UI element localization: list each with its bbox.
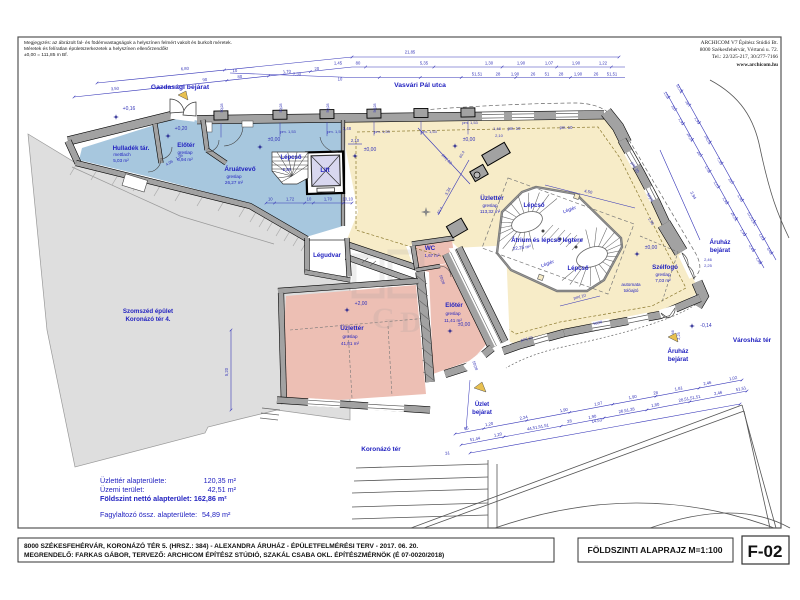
svg-text:10,10: 10,10 [342, 197, 353, 202]
svg-text:automata: automata [621, 282, 641, 287]
svg-text:1,22: 1,22 [599, 61, 608, 66]
svg-text:pm. 10: pm. 10 [560, 125, 573, 130]
svg-text:ARCHICOM V7 Építész Stúdió Bt.: ARCHICOM V7 Építész Stúdió Bt. [701, 38, 778, 46]
svg-text:±0,00 = 111,85 m Bf.: ±0,00 = 111,85 m Bf. [24, 52, 68, 58]
svg-text:50|28: 50|28 [373, 104, 377, 113]
svg-text:2,25: 2,25 [677, 332, 681, 339]
svg-text:±0,00: ±0,00 [268, 137, 281, 143]
svg-text:1,30: 1,30 [485, 61, 494, 66]
svg-text:1,90: 1,90 [517, 61, 526, 66]
svg-text:WC: WC [425, 245, 436, 252]
svg-text:greslap: greslap [655, 272, 671, 277]
svg-text:FÖLDSZINTI ALAPRAJZ M=1:100: FÖLDSZINTI ALAPRAJZ M=1:100 [587, 545, 722, 555]
svg-text:10: 10 [268, 197, 273, 202]
svg-text:10: 10 [338, 77, 343, 82]
svg-text:50|28: 50|28 [326, 104, 330, 113]
svg-text:+0,20: +0,20 [175, 126, 188, 132]
svg-text:Szélfogó: Szélfogó [652, 264, 678, 271]
svg-text:greslap: greslap [177, 150, 193, 155]
svg-text:Lépcső: Lépcső [567, 266, 588, 272]
svg-text:www.archicom.hu: www.archicom.hu [736, 62, 778, 68]
svg-text:7,03 m²: 7,03 m² [655, 278, 671, 283]
svg-text:greslap: greslap [445, 311, 461, 316]
svg-text:1,90: 1,90 [511, 72, 520, 77]
svg-text:Vasvári Pál utca: Vasvári Pál utca [394, 82, 446, 89]
svg-text:tolóajtó: tolóajtó [624, 288, 639, 293]
svg-text:1,72: 1,72 [286, 197, 295, 202]
svg-text:greslap: greslap [482, 203, 498, 208]
svg-text:pm. 1,53: pm. 1,53 [421, 129, 437, 134]
svg-text:Előtér: Előtér [177, 142, 195, 149]
svg-text:±0,00: ±0,00 [645, 245, 658, 251]
svg-text:51,51: 51,51 [607, 72, 618, 77]
svg-text:113,32 m²: 113,32 m² [480, 209, 501, 214]
svg-text:Üzlet: Üzlet [475, 401, 489, 408]
svg-text:+0,16: +0,16 [123, 106, 136, 112]
svg-text:Városház tér: Városház tér [733, 337, 772, 344]
svg-text:1,48: 1,48 [493, 126, 502, 131]
svg-text:28: 28 [559, 72, 564, 77]
svg-text:50|28: 50|28 [279, 104, 283, 113]
svg-text:8000 SZÉKESFEHÉRVÁR, KORONÁZÓ: 8000 SZÉKESFEHÉRVÁR, KORONÁZÓ TÉR 5. (HR… [24, 541, 418, 550]
svg-text:greslap: greslap [342, 334, 358, 339]
svg-text:±0,00: ±0,00 [463, 137, 476, 143]
svg-text:Üzlettér alapterülete:: Üzlettér alapterülete: [100, 476, 166, 485]
svg-text:6,94 m²: 6,94 m² [177, 157, 193, 162]
svg-text:Légudvar: Légudvar [313, 252, 341, 259]
svg-text:-0,14: -0,14 [700, 323, 712, 329]
svg-text:Átrium és lépcső légtere: Átrium és lépcső légtere [511, 237, 583, 244]
svg-text:MEGRENDELŐ: FARKAS GÁBOR, TER: MEGRENDELŐ: FARKAS GÁBOR, TERVEZŐ: ARCHI… [24, 550, 444, 559]
svg-text:26,27 m²: 26,27 m² [225, 180, 244, 185]
svg-text:2,10: 2,10 [351, 138, 360, 143]
svg-text:Lift: Lift [320, 168, 329, 174]
svg-text:Lépcső: Lépcső [280, 155, 301, 161]
svg-text:2,10: 2,10 [495, 133, 504, 138]
svg-text:41,81 m²: 41,81 m² [341, 341, 360, 346]
svg-text:11,41 m²: 11,41 m² [444, 318, 462, 323]
svg-text:Koronázó tér: Koronázó tér [361, 446, 401, 453]
svg-text:Szomszéd épület: Szomszéd épület [123, 308, 173, 315]
svg-text:3,50: 3,50 [111, 86, 120, 92]
svg-text:Üzlettér: Üzlettér [480, 193, 504, 202]
svg-text:-2,28: -2,28 [281, 167, 291, 172]
svg-text:8000 Székesfehérvár, Vértanú u: 8000 Székesfehérvár, Vértanú u. 72. [700, 46, 778, 53]
svg-text:26: 26 [531, 72, 536, 77]
svg-text:Lépcső: Lépcső [523, 203, 544, 209]
svg-text:Üzemi terület:: Üzemi terület: [100, 485, 144, 494]
svg-text:7,30: 7,30 [293, 71, 302, 76]
svg-text:Tel.: 22/325-217, 30/277-7166: Tel.: 22/325-217, 30/277-7166 [712, 54, 778, 60]
svg-text:Áruház: Áruház [710, 239, 731, 246]
svg-text:mettlach: mettlach [113, 152, 131, 157]
svg-text:28: 28 [496, 72, 501, 77]
svg-text:5,35: 5,35 [420, 61, 429, 66]
svg-text:1,45: 1,45 [334, 61, 343, 66]
svg-text:42,51 m²: 42,51 m² [208, 485, 237, 494]
svg-text:pm. 1,53: pm. 1,53 [374, 129, 390, 134]
svg-text:54,89 m²: 54,89 m² [202, 510, 231, 519]
svg-text:bejárat: bejárat [472, 410, 492, 416]
svg-text:Földszint nettó alapterület: 1: Földszint nettó alapterület: 162,86 m² [100, 494, 227, 503]
svg-text:F-02: F-02 [748, 542, 783, 561]
svg-text:5,20: 5,20 [224, 367, 229, 376]
svg-text:1,07: 1,07 [545, 61, 554, 66]
svg-text:5,03 m²: 5,03 m² [113, 158, 129, 163]
svg-text:51,51: 51,51 [472, 72, 483, 77]
svg-text:26: 26 [594, 72, 599, 77]
svg-text:Megjegyzés: az ábrázolt fal- é: Megjegyzés: az ábrázolt fal- és födémvas… [24, 40, 232, 46]
svg-text:bejárat: bejárat [710, 247, 730, 254]
svg-text:Hulladék tár.: Hulladék tár. [113, 145, 150, 152]
svg-text:1,90: 1,90 [574, 72, 583, 77]
svg-text:pm. 10: pm. 10 [508, 126, 521, 131]
svg-text:pm. 1,53: pm. 1,53 [280, 129, 296, 134]
svg-text:±0,00: ±0,00 [364, 147, 377, 153]
svg-text:Áruátvevő: Áruátvevő [224, 164, 255, 173]
svg-text:Méretek és felíratlan épületsz: Méretek és felíratlan épületszerkezetek … [24, 46, 168, 52]
svg-text:2,46: 2,46 [704, 257, 713, 262]
svg-text:Gazdasági bejárat: Gazdasági bejárat [151, 84, 210, 91]
svg-text:6,80: 6,80 [181, 66, 190, 72]
svg-text:Előtér: Előtér [445, 302, 463, 309]
svg-text:1,70: 1,70 [283, 69, 292, 75]
svg-text:2,25: 2,25 [704, 263, 713, 268]
svg-text:bejárat: bejárat [668, 356, 688, 363]
svg-text:Fagylaltozó össz. alapterülete: Fagylaltozó össz. alapterülete: [100, 510, 197, 519]
svg-text:1,48: 1,48 [343, 126, 352, 131]
svg-text:120,35 m²: 120,35 m² [204, 476, 237, 485]
svg-text:10: 10 [307, 197, 312, 202]
svg-text:D: D [400, 306, 422, 339]
svg-text:greslap: greslap [226, 174, 242, 179]
svg-text:G: G [372, 302, 395, 335]
svg-text:1,67 m²: 1,67 m² [425, 253, 440, 258]
svg-text:pm. 1,53: pm. 1,53 [462, 120, 478, 125]
svg-text:80: 80 [356, 61, 361, 66]
svg-text:Koronázó tér 4.: Koronázó tér 4. [125, 316, 170, 323]
svg-text:21,85: 21,85 [405, 50, 416, 55]
svg-text:Üzlettér: Üzlettér [340, 323, 364, 332]
svg-text:51: 51 [545, 72, 550, 77]
svg-text:1,70: 1,70 [324, 197, 333, 202]
svg-text:+2,00: +2,00 [355, 301, 368, 307]
svg-text:1,90: 1,90 [572, 61, 581, 66]
svg-text:Áruház: Áruház [668, 348, 689, 355]
svg-text:50|28: 50|28 [220, 104, 224, 113]
